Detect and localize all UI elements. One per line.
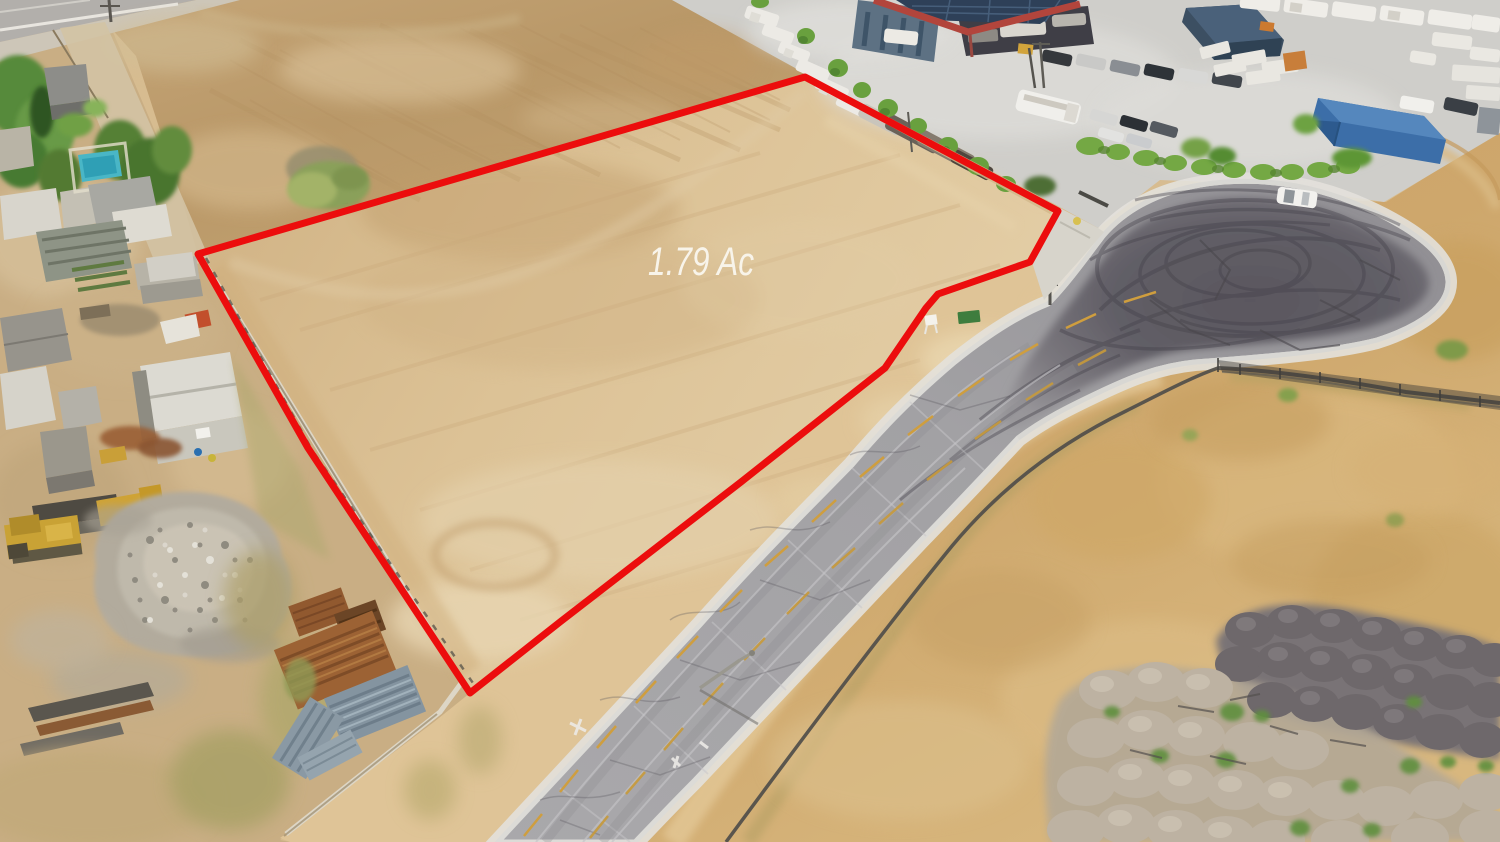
svg-text:1.79 Ac: 1.79 Ac bbox=[648, 240, 754, 284]
